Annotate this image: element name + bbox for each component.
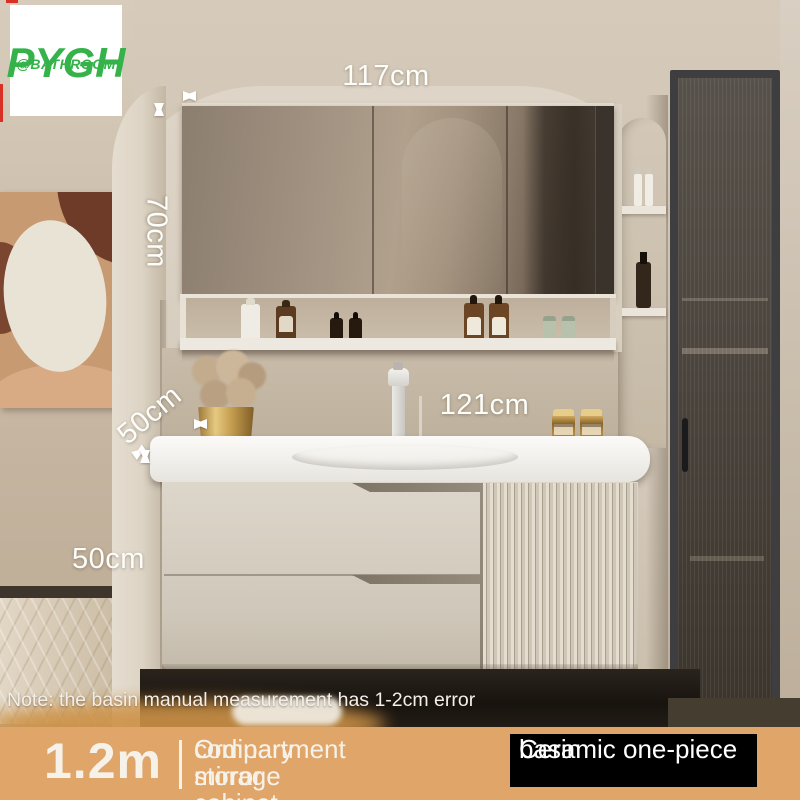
feature-line-2: compartment mirror cabinet bbox=[194, 736, 346, 800]
basin-recess bbox=[292, 444, 518, 470]
door-handle bbox=[682, 418, 688, 472]
footer-size-label: 1.2m bbox=[44, 733, 162, 789]
toiletry-bottle-white bbox=[241, 304, 260, 338]
product-photo: PYGH @BATHROOM 117cm 70cm 50cm 121cm 50c… bbox=[0, 0, 800, 800]
brand-watermark: PYGH @BATHROOM bbox=[10, 5, 122, 116]
fluted-glass-texture bbox=[678, 78, 772, 700]
pump-bottle-top bbox=[495, 295, 502, 304]
side-shelf-board bbox=[618, 308, 666, 316]
faucet-body bbox=[392, 384, 405, 440]
dropper-bottle bbox=[330, 318, 343, 338]
dropper-cap bbox=[334, 312, 339, 319]
red-crop-mark bbox=[6, 0, 18, 3]
glass-reflection bbox=[690, 556, 764, 561]
toiletry-bottle-cap bbox=[282, 300, 290, 307]
red-crop-mark bbox=[0, 84, 3, 122]
dropper-cap bbox=[353, 312, 358, 319]
dropper-bottle bbox=[349, 318, 362, 338]
dried-flower-pom bbox=[226, 378, 256, 408]
drawer-handle-groove bbox=[352, 575, 480, 584]
dim-arrow-counter-width bbox=[194, 418, 608, 430]
dim-arrow-mirror-width bbox=[183, 90, 612, 102]
floor-shadow-right bbox=[668, 698, 800, 727]
cosmetic-tube-band bbox=[562, 316, 575, 321]
mirror-doorway-reflection bbox=[523, 106, 595, 300]
faucet-spout bbox=[388, 368, 409, 386]
faucet-tip bbox=[393, 362, 403, 370]
toiletry-bottle-label bbox=[279, 316, 293, 332]
glass-reflection bbox=[682, 348, 768, 354]
footer-divider bbox=[179, 740, 182, 789]
abstract-wall-art bbox=[0, 192, 130, 408]
pump-bottle-top bbox=[470, 295, 477, 304]
shelf-bottle-white bbox=[634, 174, 642, 206]
mirror-door-seam bbox=[372, 106, 374, 300]
fluted-cabinet-door bbox=[483, 483, 637, 669]
toiletry-bottle-cap bbox=[246, 298, 255, 305]
shelf-bottle-dark bbox=[636, 262, 651, 308]
glass-reflection bbox=[682, 298, 768, 301]
measurement-note: Note: the basin manual measurement has 1… bbox=[7, 689, 475, 712]
shelf-bottle-dark-cap bbox=[640, 252, 647, 264]
pump-bottle-label bbox=[492, 317, 506, 335]
cosmetic-tube-band bbox=[543, 316, 556, 321]
badge-line-2: basin bbox=[519, 737, 581, 762]
shelf-bottle-white bbox=[645, 174, 653, 206]
shelf-bottle-pump bbox=[647, 167, 651, 174]
dim-label-mirror-width: 117cm bbox=[341, 60, 431, 93]
dim-arrow-mirror-height bbox=[153, 103, 165, 314]
cosmetic-jar-lid bbox=[581, 409, 602, 416]
cosmetic-jar-lid bbox=[553, 409, 574, 416]
mirror-door-seam bbox=[506, 106, 508, 300]
basin-badge: Ceramic one-piece basin bbox=[510, 734, 757, 787]
mirror-dark-edge bbox=[596, 106, 614, 300]
dim-label-cabinet-height: 50cm bbox=[72, 543, 142, 576]
dim-arrow-cabinet-height bbox=[139, 450, 151, 658]
side-shelf-board bbox=[618, 206, 666, 214]
brand-handle: @BATHROOM bbox=[16, 56, 116, 72]
drawer-handle-groove bbox=[352, 483, 480, 492]
shelf-bottle-pump bbox=[636, 167, 640, 174]
mirror-arch-reflection bbox=[402, 118, 502, 294]
mirror-shelf-board bbox=[180, 338, 616, 350]
pump-bottle-label bbox=[467, 317, 481, 335]
right-wall-strip bbox=[780, 0, 800, 727]
